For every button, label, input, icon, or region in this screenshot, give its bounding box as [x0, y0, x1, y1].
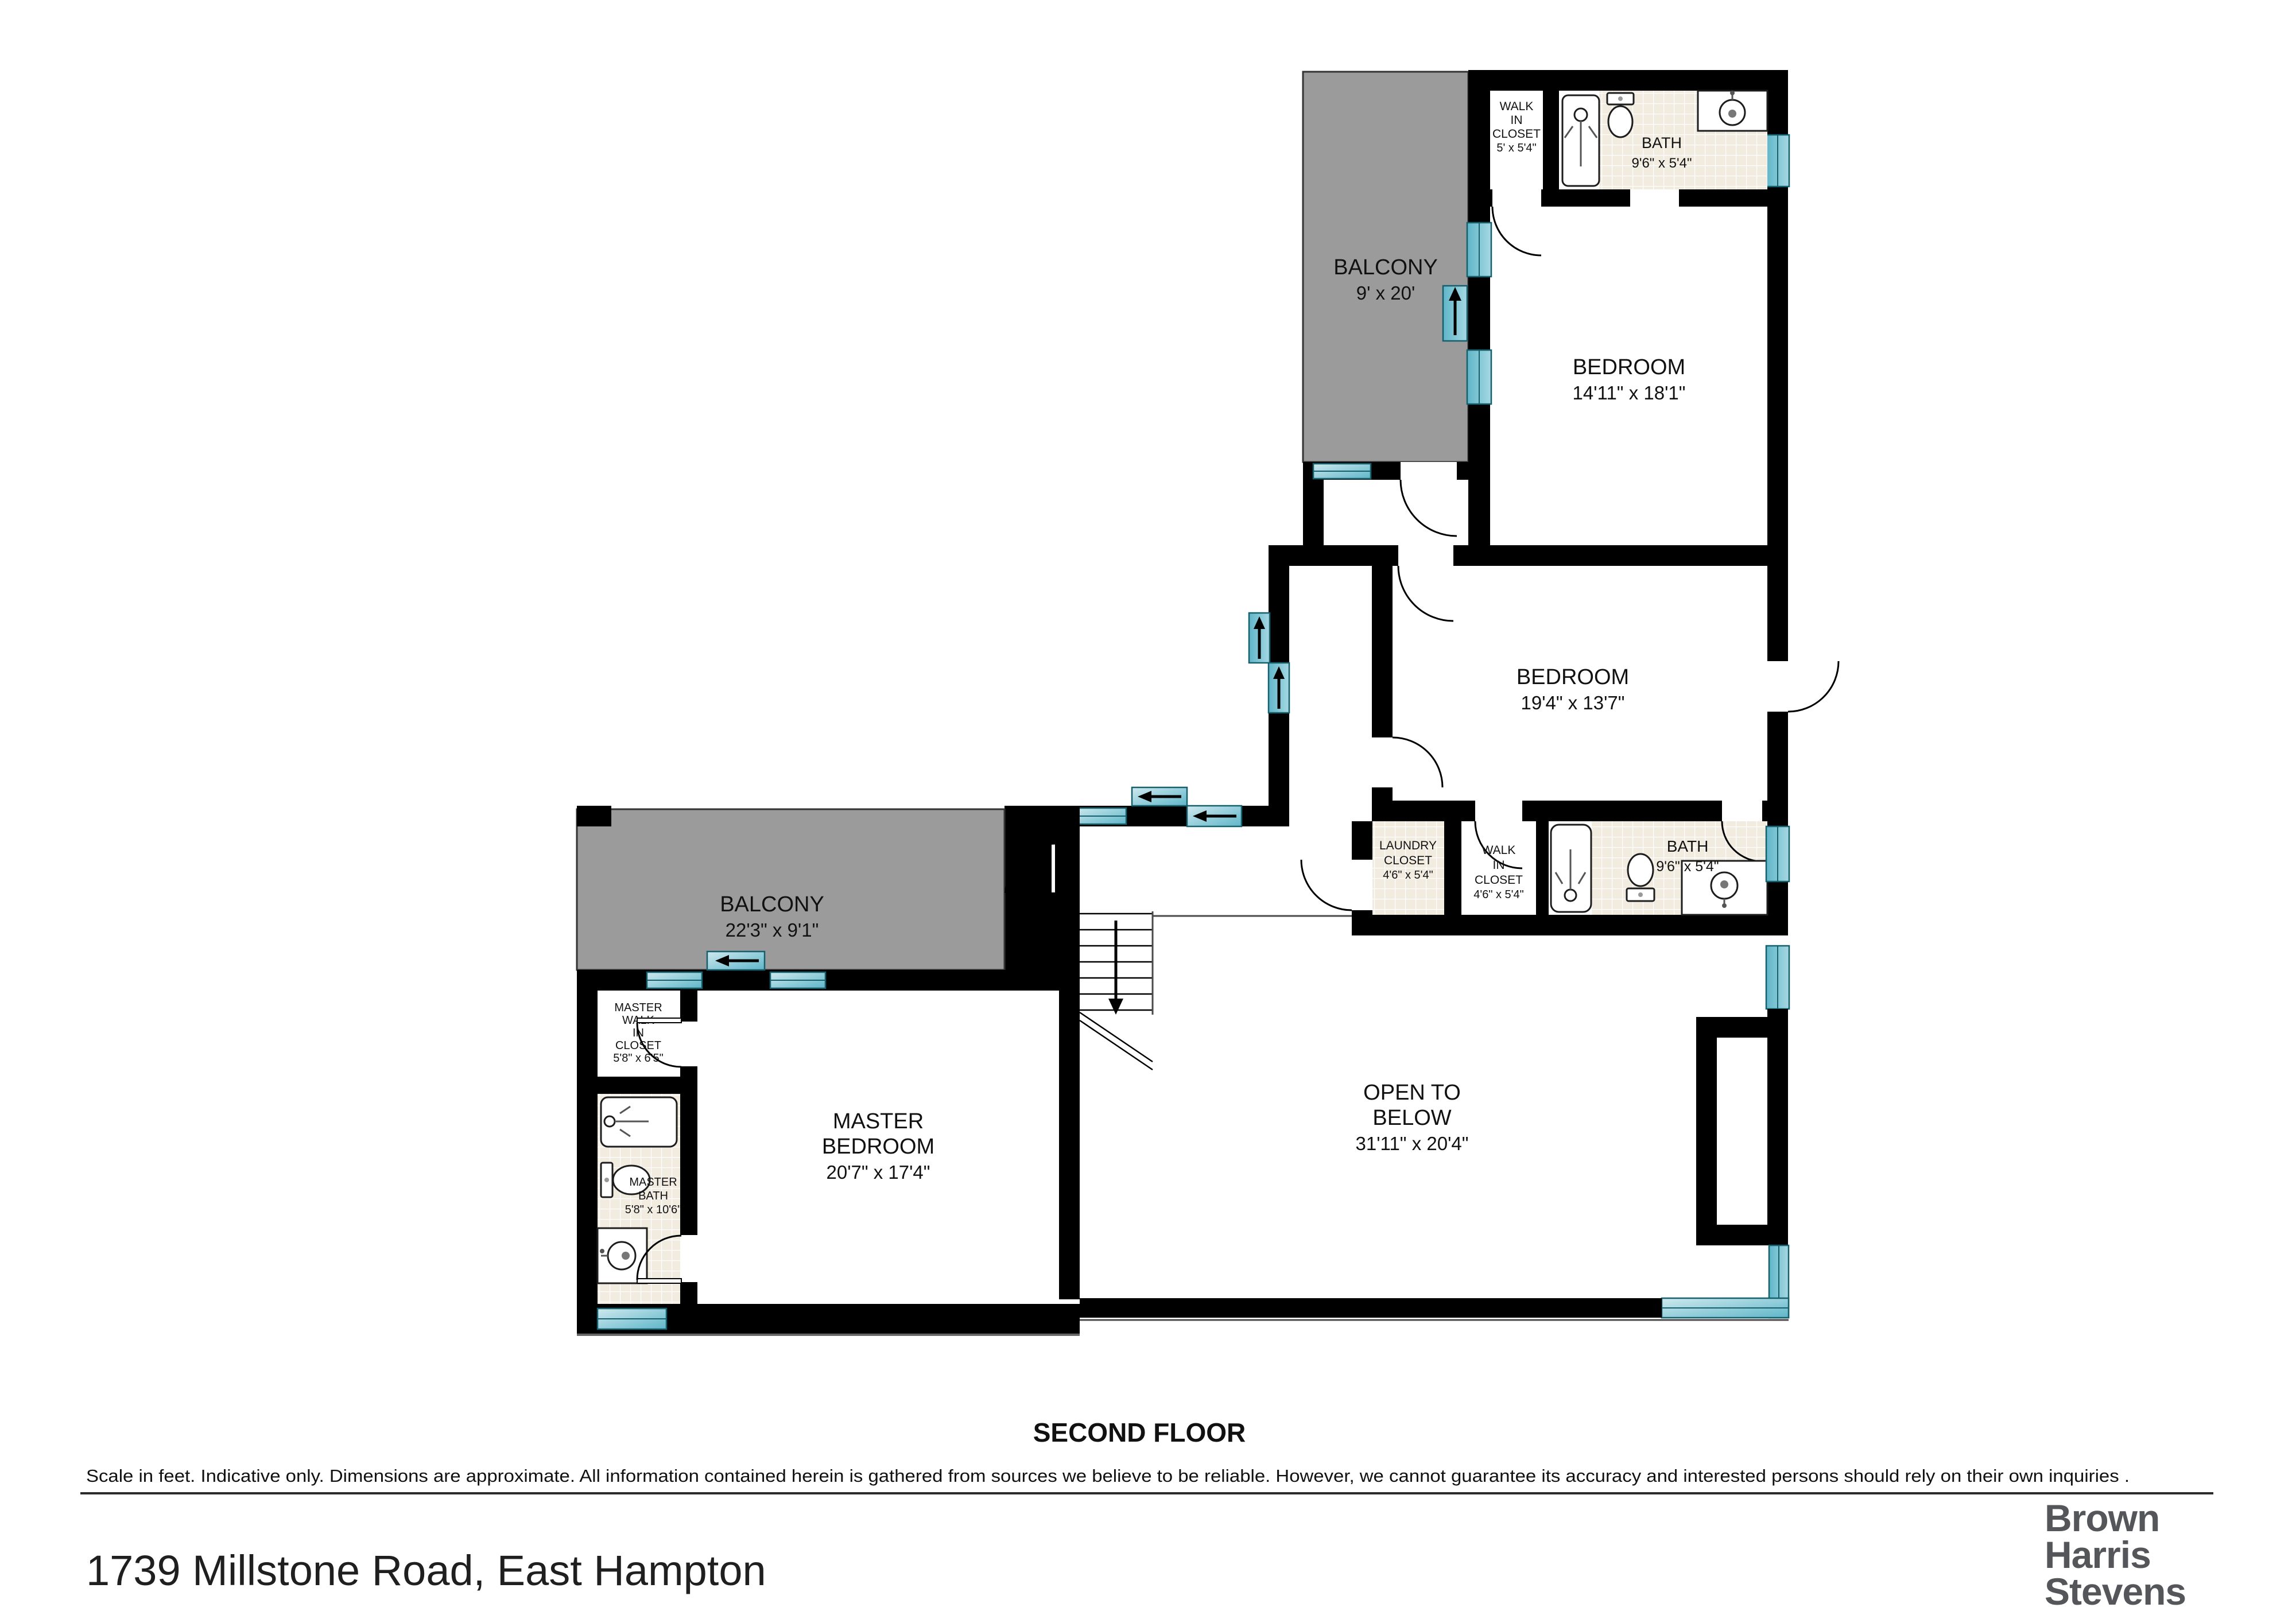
room-dims: 20'7" x 17'4"	[827, 1162, 930, 1183]
room-label: IN	[1511, 114, 1523, 127]
room-label: WALK	[1500, 100, 1534, 113]
chimney-flue	[1717, 1038, 1767, 1225]
room-label: IN	[1493, 859, 1505, 872]
staircase	[1080, 911, 1352, 1070]
floor-title: SECOND FLOOR	[1033, 1418, 1246, 1447]
room-dims: 5' x 5'4"	[1496, 142, 1536, 154]
room-label: OPEN TO	[1363, 1081, 1461, 1105]
room-label: WALK	[1482, 844, 1516, 857]
disclaimer-text: Scale in feet. Indicative only. Dimensio…	[86, 1466, 2130, 1486]
footer-rule	[80, 1492, 2213, 1494]
sink-icon	[598, 1228, 647, 1283]
room-label: BEDROOM	[1517, 665, 1629, 689]
room-label: BEDROOM	[822, 1135, 934, 1159]
room-balcony-top: BALCONY 9' x 20'	[1303, 72, 1468, 462]
room-dims: 22'3" x 9'1"	[726, 919, 819, 941]
shower-icon	[1562, 95, 1599, 186]
brown-harris-stevens-logo: Brown Harris Stevens	[2045, 1497, 2186, 1613]
sink-icon	[1698, 91, 1767, 131]
door-opening	[1722, 801, 1762, 821]
room-label: MASTER	[833, 1109, 924, 1133]
door-opening	[1492, 189, 1541, 207]
door-arc	[1401, 480, 1457, 536]
room-label: BELOW	[1372, 1106, 1451, 1130]
door-arc	[1788, 661, 1839, 712]
room-label: BATH	[1642, 134, 1682, 152]
logo-line: Harris	[2045, 1533, 2151, 1576]
room-label: CLOSET	[1475, 873, 1523, 887]
door-opening	[680, 1022, 697, 1066]
toilet-icon	[1607, 93, 1634, 137]
room-dims: 4'6" x 5'4"	[1473, 888, 1523, 901]
door-arc	[1492, 207, 1541, 255]
door-arc	[1393, 737, 1442, 787]
laundry-floor	[1372, 821, 1444, 915]
stair-direction-arrow	[1108, 999, 1123, 1015]
room-bath-top: BATH 9'6" x 5'4"	[1562, 91, 1767, 189]
door-opening	[1372, 737, 1393, 787]
landing-south-wall	[1004, 787, 1289, 991]
toilet-icon	[1627, 854, 1654, 901]
room-label: BEDROOM	[1573, 355, 1685, 379]
door-opening	[1401, 462, 1457, 480]
door-opening	[1352, 860, 1372, 910]
room-master-bedroom: MASTER BEDROOM 20'7" x 17'4"	[822, 1109, 934, 1183]
address-text: 1739 Millstone Road, East Hampton	[86, 1547, 766, 1594]
room-dims: 9'6" x 5'4"	[1632, 156, 1692, 171]
floor-plan-page: BALCONY 9' x 20'	[0, 0, 2296, 1623]
room-open-to-below: OPEN TO BELOW 31'11" x 20'4"	[1356, 1081, 1469, 1154]
room-bedroom-top: BEDROOM 14'11" x 18'1"	[1573, 355, 1686, 403]
room-label: MASTER	[629, 1176, 677, 1189]
room-label: CLOSET	[615, 1039, 661, 1052]
door-leaf	[637, 1279, 681, 1283]
room-balcony-left: BALCONY 22'3" x 9'1"	[577, 806, 1004, 970]
door-opening	[680, 1235, 697, 1282]
door-arc	[1301, 860, 1352, 910]
door-arc	[1398, 566, 1453, 621]
balcony-floor	[577, 809, 1004, 970]
door-leaf	[1051, 844, 1056, 893]
room-walk-in-closet-top: WALK IN CLOSET 5' x 5'4"	[1492, 100, 1541, 154]
room-dims: 9' x 20'	[1356, 282, 1415, 304]
room-label: BALCONY	[720, 892, 824, 917]
door-opening	[1630, 189, 1679, 207]
door-leaf	[637, 1018, 681, 1023]
bathtub-icon	[1551, 825, 1591, 912]
floor-plan-svg: BALCONY 9' x 20'	[0, 0, 2296, 1623]
bathtub-icon	[601, 1097, 677, 1147]
corridor	[1249, 545, 1289, 826]
room-dims: 9'6" x 5'4"	[1656, 859, 1719, 875]
room-label: BALCONY	[1333, 255, 1438, 279]
room-dims: 4'6" x 5'4"	[1383, 869, 1433, 882]
room-dims: 19'4" x 13'7"	[1521, 692, 1625, 713]
room-dims: 31'11" x 20'4"	[1356, 1133, 1469, 1154]
room-label: LAUNDRY	[1379, 839, 1437, 852]
logo-line: Stevens	[2045, 1570, 2186, 1613]
room-label: BATH	[1667, 837, 1709, 855]
room-label: MASTER	[614, 1001, 662, 1014]
room-label: CLOSET	[1384, 854, 1432, 867]
room-dims: 5'8" x 10'6"	[625, 1203, 682, 1216]
door-opening	[1475, 801, 1522, 821]
logo-line: Brown	[2045, 1497, 2159, 1539]
room-label: CLOSET	[1492, 127, 1541, 141]
room-dims: 14'11" x 18'1"	[1573, 382, 1686, 403]
room-label: BATH	[638, 1190, 668, 1202]
